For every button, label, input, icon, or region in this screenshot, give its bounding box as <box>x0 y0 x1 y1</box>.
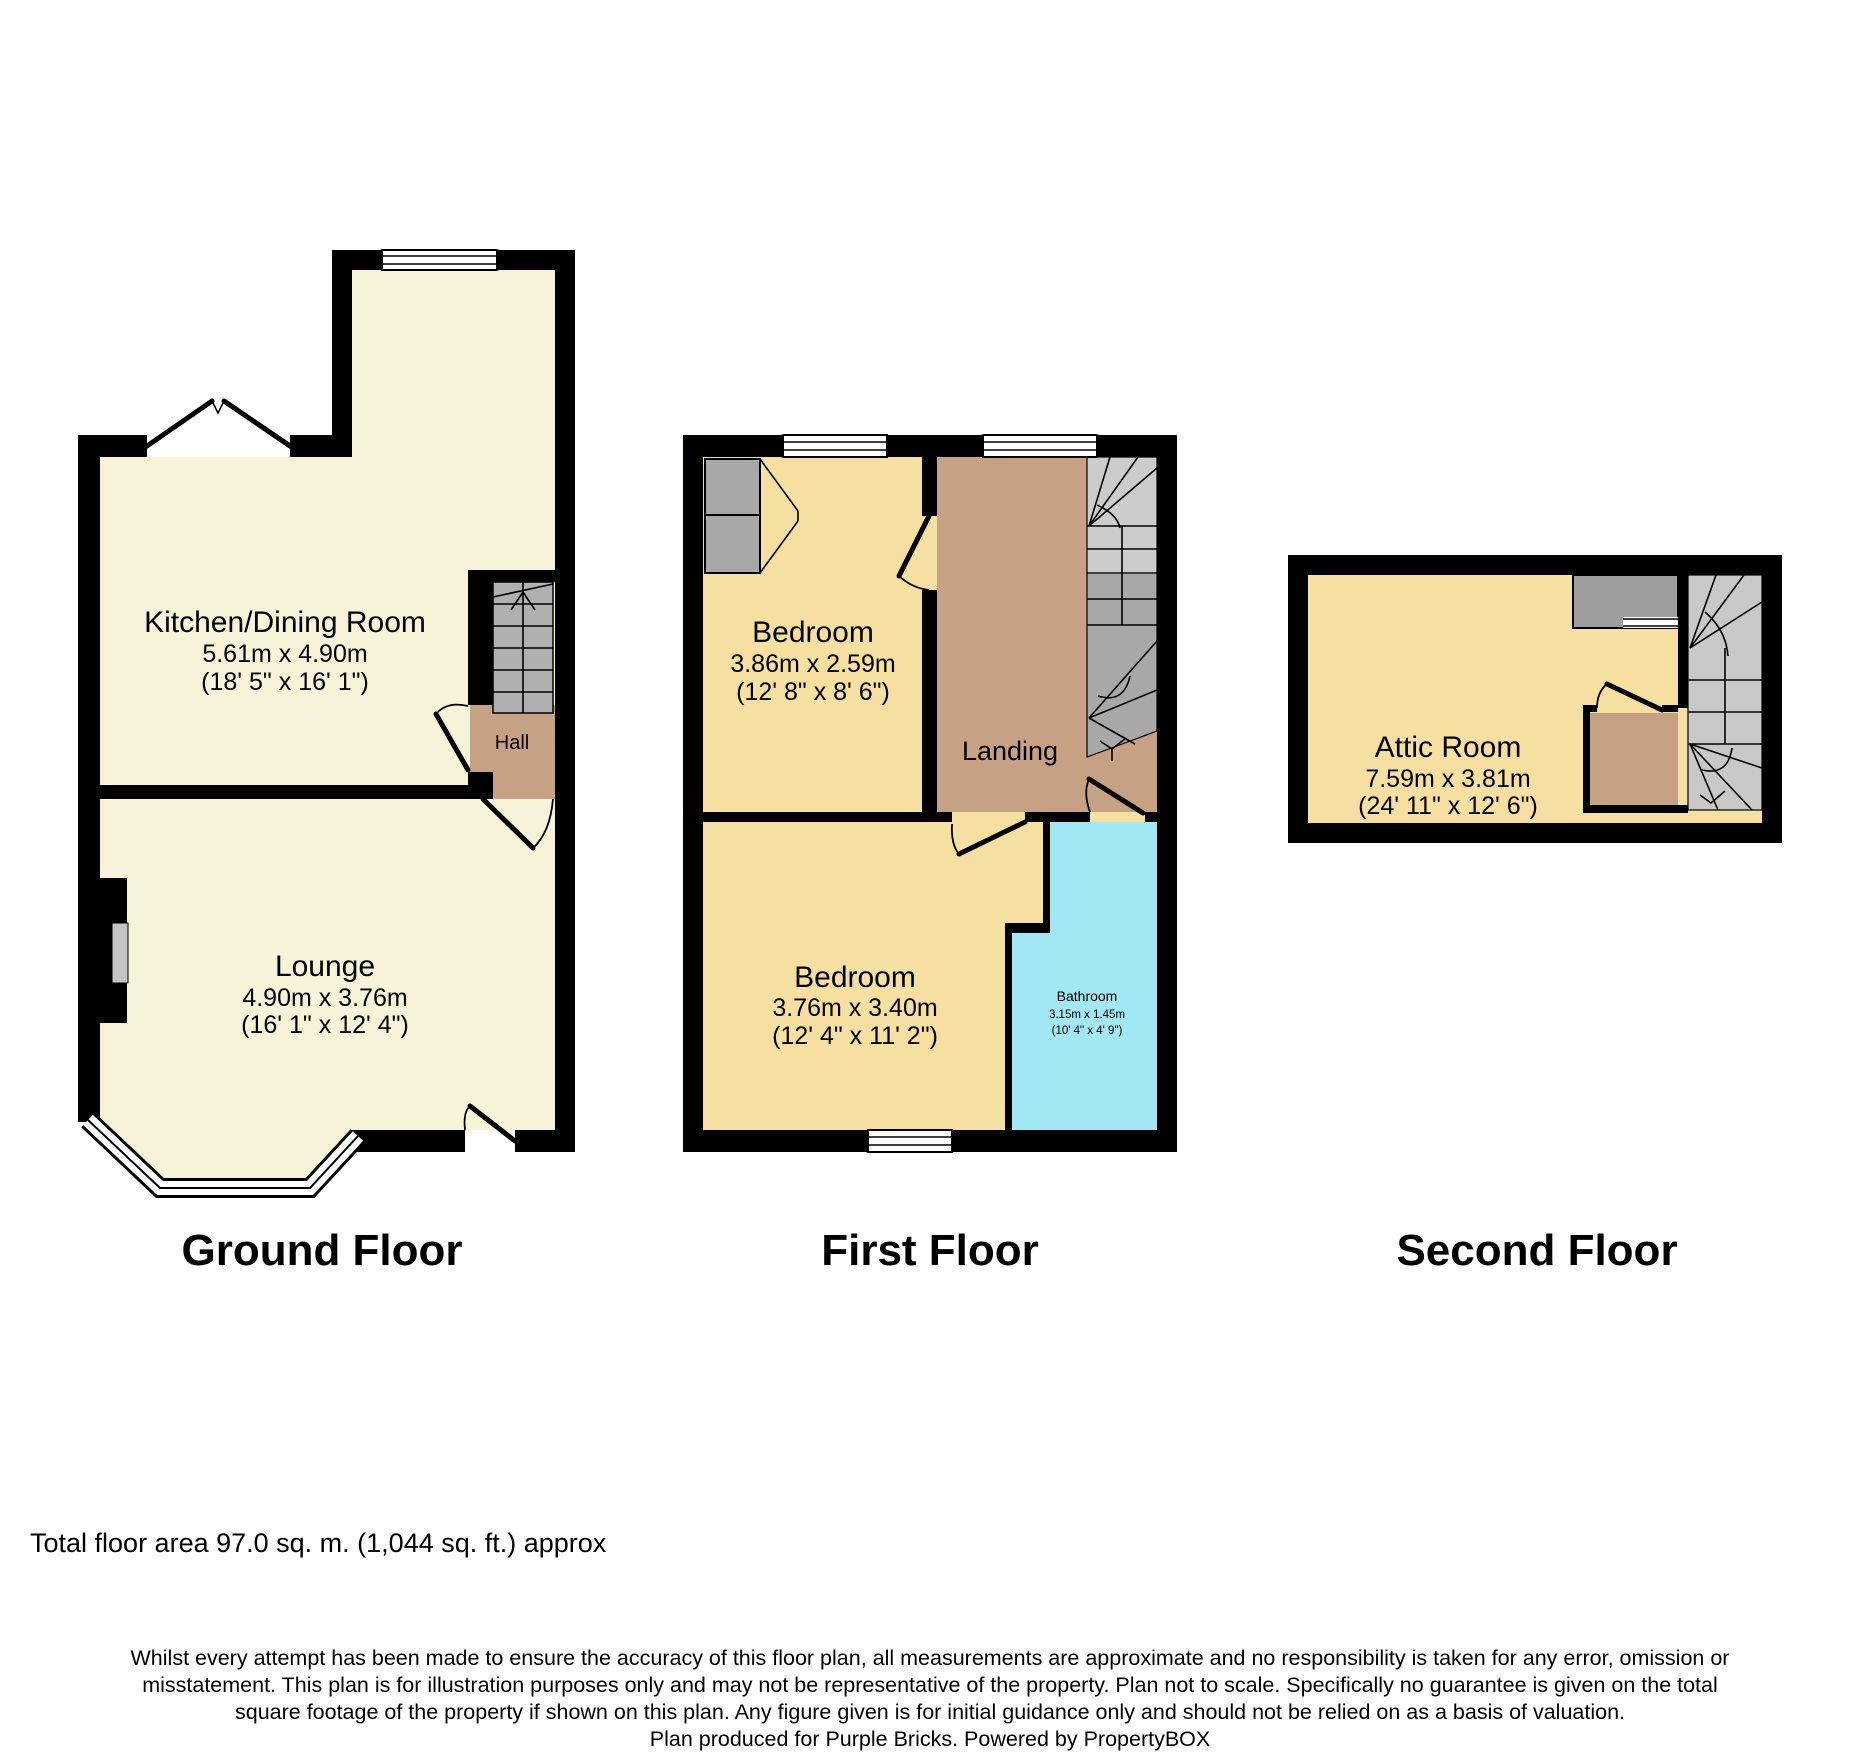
room-size-bedroom-front-imperial: (12' 4" x 11' 2") <box>772 1022 938 1050</box>
disclaimer-line: Plan produced for Purple Bricks. Powered… <box>0 1726 1860 1753</box>
total-floor-area-text: Total floor area 97.0 sq. m. (1,044 sq. … <box>30 1528 606 1559</box>
floorplan-svg: Kitchen/Dining Room 5.61m x 4.90m (18' 5… <box>0 0 1860 1745</box>
floor-title-ground: Ground Floor <box>181 1226 462 1275</box>
window <box>783 435 887 457</box>
room-label-kitchen: Kitchen/Dining Room <box>144 606 426 639</box>
floor-title-first: First Floor <box>821 1226 1039 1275</box>
room-size-bathroom-metric: 3.15m x 1.45m <box>1049 1009 1125 1021</box>
ground-floor-plan: Kitchen/Dining Room 5.61m x 4.90m (18' 5… <box>78 250 575 1275</box>
window <box>868 1130 952 1152</box>
room-label-attic: Attic Room <box>1375 731 1522 764</box>
disclaimer-line: misstatement. This plan is for illustrat… <box>0 1672 1860 1699</box>
disclaimer-text: Whilst every attempt has been made to en… <box>0 1645 1860 1753</box>
room-size-attic-metric: 7.59m x 3.81m <box>1365 765 1530 793</box>
staircase-first-up <box>1087 457 1157 573</box>
room-label-bedroom-rear: Bedroom <box>752 616 874 649</box>
disclaimer-line: square footage of the property if shown … <box>0 1699 1860 1726</box>
cupboard <box>1573 575 1678 628</box>
window <box>382 250 497 270</box>
room-size-lounge-metric: 4.90m x 3.76m <box>242 984 407 1012</box>
room-size-kitchen-metric: 5.61m x 4.90m <box>202 640 367 668</box>
first-floor-plan: Bedroom 3.86m x 2.59m (12' 8" x 8' 6") L… <box>683 435 1177 1275</box>
room-label-landing: Landing <box>962 736 1058 766</box>
room-label-bathroom: Bathroom <box>1057 988 1118 1004</box>
room-size-kitchen-imperial: (18' 5" x 16' 1") <box>201 668 369 696</box>
room-label-hall: Hall <box>495 732 529 754</box>
second-floor-plan: Attic Room 7.59m x 3.81m (24' 11" x 12' … <box>1288 555 1782 1275</box>
room-size-lounge-imperial: (16' 1" x 12' 4") <box>241 1011 409 1039</box>
room-size-bedroom-rear-imperial: (12' 8" x 8' 6") <box>736 678 890 706</box>
floor-title-second: Second Floor <box>1396 1226 1677 1275</box>
room-size-attic-imperial: (24' 11" x 12' 6") <box>1358 792 1538 820</box>
staircase-second <box>1688 575 1762 810</box>
attic-landing-floor <box>1590 713 1678 805</box>
window <box>983 435 1097 457</box>
double-door-swing <box>147 401 290 446</box>
chimney-recess <box>112 923 128 983</box>
disclaimer-line: Whilst every attempt has been made to en… <box>0 1645 1860 1672</box>
room-size-bathroom-imperial: (10' 4" x 4' 9") <box>1052 1025 1123 1037</box>
room-label-bedroom-front: Bedroom <box>794 961 916 994</box>
room-size-bedroom-front-metric: 3.76m x 3.40m <box>772 994 937 1022</box>
staircase-first-down <box>1087 573 1157 761</box>
room-label-lounge: Lounge <box>275 950 375 983</box>
room-size-bedroom-rear-metric: 3.86m x 2.59m <box>730 650 895 678</box>
staircase-ground <box>493 582 553 713</box>
